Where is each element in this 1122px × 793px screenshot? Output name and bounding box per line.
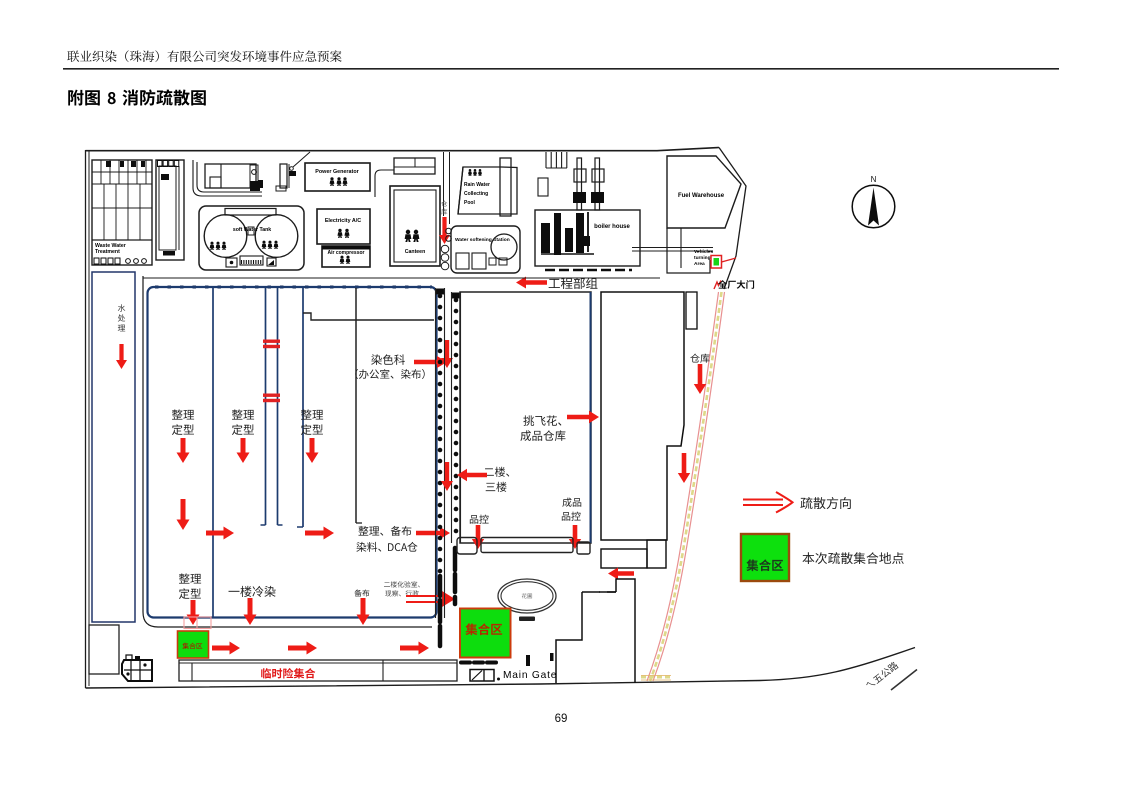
svg-text:Power Generator: Power Generator [315,169,359,175]
svg-text:Water softening Station: Water softening Station [455,237,510,243]
svg-text:Pool: Pool [464,200,475,206]
svg-text:N: N [871,175,877,184]
svg-text:Fuel Warehouse: Fuel Warehouse [678,193,725,199]
svg-text:Collecting: Collecting [464,191,488,197]
svg-text:boiler house: boiler house [594,224,630,230]
svg-text:Air compressor: Air compressor [328,250,365,256]
svg-text:Treatment: Treatment [95,249,120,255]
svg-text:Area: Area [694,261,705,267]
svg-text:Electricity A/C: Electricity A/C [325,218,361,224]
svg-text:Canteen: Canteen [405,249,425,255]
svg-text:Main Gate: Main Gate [503,670,557,681]
svg-text:soft Water Tank: soft Water Tank [233,227,271,233]
svg-text:69: 69 [555,713,568,725]
svg-text:Rain Water: Rain Water [464,182,490,188]
svg-text:Vehicles: Vehicles [694,249,714,255]
svg-text:turning: turning [694,255,711,261]
